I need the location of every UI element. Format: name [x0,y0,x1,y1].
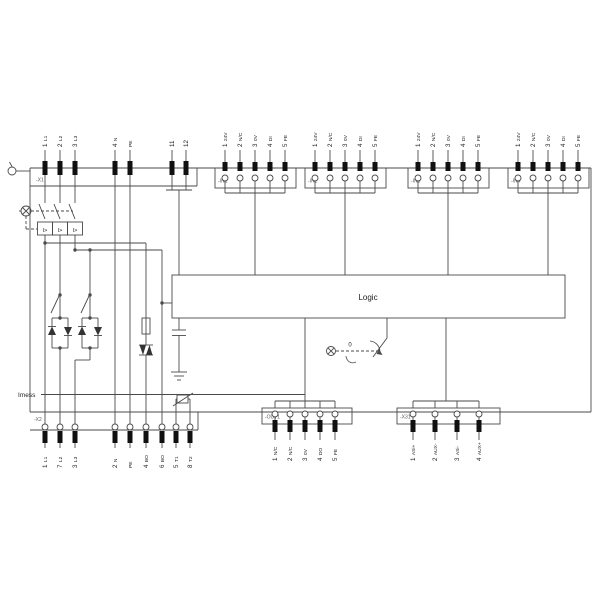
pin-label: 2N/C [430,132,437,147]
arrow-icon [377,349,383,355]
terminal [318,420,323,432]
contact-circle [187,424,193,430]
terminal [313,162,318,171]
terminal [531,162,536,171]
pin-label: 5FE [282,134,289,147]
terminal [113,431,118,443]
contact-circle [445,175,451,181]
terminal [461,162,466,171]
pin-label: 5T1 [173,456,180,468]
terminal [128,161,133,175]
contact-circle [312,175,318,181]
contact-circle [159,424,165,430]
pin-label: 4DI [560,136,567,147]
contact-circle [222,175,228,181]
connector-in3: -IN3124V2N/C30V4DI5FE [408,132,489,275]
pin-label: 5FE [475,134,482,147]
terminal [128,431,133,443]
contact-circle [143,424,149,430]
terminal [358,162,363,171]
terminal [113,161,118,175]
terminal [576,162,581,171]
contact-circle [575,175,581,181]
pin-label: 2N/C [327,132,334,147]
pin-label: 4DI [460,136,467,147]
pin-label: 4AUX+ [476,442,483,461]
pin-label: 4DI [357,136,364,147]
terminal [144,431,149,443]
pin-label: 30V [252,134,259,147]
terminal [58,161,63,175]
pin-label: 30V [342,134,349,147]
contact-circle [127,424,133,430]
terminal [328,162,333,171]
pin-label: 1L1 [42,456,49,468]
terminal [561,162,566,171]
terminal [288,420,293,432]
connector-in4: -IN4124V2N/C30V4DI5FE [508,132,589,275]
contact-circle [460,175,466,181]
contact-circle [530,175,536,181]
manual-switch: 0 [327,338,388,363]
manual-actuator-icon [19,206,31,216]
terminal [43,161,48,175]
pin-label: 11 [169,140,176,147]
pin-label: PE [128,461,134,468]
pin-label: 3L3 [72,135,79,147]
overcurrent-trip-label: I> [58,228,63,234]
terminal [416,162,421,171]
contact-circle [282,175,288,181]
connector-name: -X1 [36,178,44,184]
terminal [433,420,438,432]
connector-out1: -OUT11N/C2N/C30V4DO5FE [262,401,352,461]
actuator-knob-icon [327,347,336,356]
contact-circle [560,175,566,181]
terminal [446,162,451,171]
terminal [73,161,78,175]
contact-circle [42,424,48,430]
contact-circle [272,411,278,417]
pin-label: 5FE [575,134,582,147]
contact-circle [287,411,293,417]
terminal [223,162,228,171]
terminal [373,162,378,171]
imess-annotation: Imess [18,392,36,399]
pin-label: 5FE [332,448,339,461]
contact-circle [317,411,323,417]
contact-circle [372,175,378,181]
connector-in2: -IN2124V2N/C30V4DI5FE [305,132,386,275]
pin-label: PE [128,140,134,147]
terminal [253,162,258,171]
contact-circle [342,175,348,181]
contact-circle [332,411,338,417]
pin-label: 6BO [159,455,166,468]
pin-label: 7L2 [57,456,64,468]
pin-label: 2N/C [287,446,294,461]
circuit-breaker: I>I>I> [19,204,83,235]
pin-label: 4N [112,137,119,147]
imess-label: Imess [18,392,36,399]
wiring-diagram: I>I>I>0LogicImess-X11L12L23L34NPE1112-IN… [0,0,600,600]
terminal [431,162,436,171]
pin-label: 2AUX- [432,443,439,461]
connector-x2: -X21L17L23L32NPE4BO6BO5T18T2 [30,412,198,468]
pin-label: 124V [222,132,229,147]
terminal [333,420,338,432]
pin-label: 2L2 [57,135,64,147]
overcurrent-trip-label: I> [43,228,48,234]
terminal [283,162,288,171]
connector-in1: -IN1124V2N/C30V4DI5FE [215,132,296,275]
pin-label: 30V [302,448,309,461]
terminal [546,162,551,171]
contact-circle [430,175,436,181]
contact-circle [252,175,258,181]
contact-circle [57,424,63,430]
logic-label: Logic [358,293,377,302]
contact-circle [410,411,416,417]
overcurrent-trip-label: I> [73,228,78,234]
pin-label: 4BO [143,455,150,468]
pin-label: 12 [183,140,190,147]
pin-label: 3ASi- [454,446,461,461]
terminal [174,431,179,443]
pin-label: 1ASi+ [410,445,417,461]
contact-circle [302,411,308,417]
terminal [43,431,48,443]
terminal [411,420,416,432]
wires [41,175,446,424]
pin-label: 30V [445,134,452,147]
pin-label: 1L1 [42,135,49,147]
connector-name: -X2 [34,417,42,423]
pin-label: 2N [112,458,119,468]
contact-circle [72,424,78,430]
contact-circle [515,175,521,181]
terminal [516,162,521,171]
connector-x31: -X311ASi+2AUX-3ASi-4AUX+ [397,401,500,461]
contact-circle [432,411,438,417]
contact-circle [173,424,179,430]
connector-name: -X31 [400,415,411,421]
terminal [477,420,482,432]
contact-circle [454,411,460,417]
thyristor-group [48,293,72,349]
terminal [170,161,175,175]
terminal [58,431,63,443]
pin-label: 5FE [372,134,379,147]
schematic-canvas: I>I>I>0LogicImess-X11L12L23L34NPE1112-IN… [0,0,600,600]
pin-label: 2N/C [237,132,244,147]
contact-circle [476,411,482,417]
pin-label: 124V [312,132,319,147]
terminal [273,420,278,432]
enclosure [8,162,591,412]
pin-label: 124V [415,132,422,147]
terminal [238,162,243,171]
contact-circle [475,175,481,181]
contact-circle [237,175,243,181]
terminal [160,431,165,443]
terminal [73,431,78,443]
pin-label: 30V [545,134,552,147]
terminal [455,420,460,432]
contact-circle [357,175,363,181]
pin-label: 124V [515,132,522,147]
terminal [268,162,273,171]
pin-label: 3L3 [72,456,79,468]
pin-label: 1N/C [272,446,279,461]
terminal [343,162,348,171]
earth-marker-icon [8,162,30,175]
contact-circle [267,175,273,181]
switch-position-label: 0 [348,343,352,349]
pin-label: 4DO [317,448,324,461]
thyristor-group [78,293,102,349]
terminal [188,431,193,443]
thyristor-icon [140,345,147,355]
terminal [476,162,481,171]
logic-block: Logic [172,275,565,318]
contact-circle [327,175,333,181]
pin-label: 8T2 [187,456,194,468]
contact-circle [545,175,551,181]
pin-label: 4DI [267,136,274,147]
contact-circle [415,175,421,181]
contact-circle [112,424,118,430]
terminal [303,420,308,432]
terminal [184,161,189,175]
pin-label: 2N/C [530,132,537,147]
thyristor-icon [146,345,153,355]
